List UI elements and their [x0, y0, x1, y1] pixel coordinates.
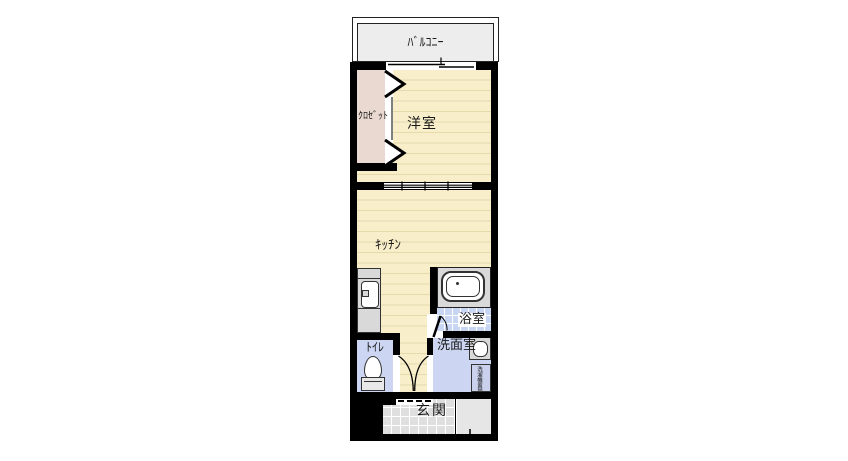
- balcony-label: ﾊﾞﾙｺﾆｰ: [407, 36, 443, 49]
- bathroom-door-opening-h: [427, 331, 443, 338]
- bedroom-label: 洋室: [407, 117, 437, 132]
- bathtub-surround: [437, 267, 491, 308]
- wall-closet-bottom: [350, 163, 397, 171]
- washing-machine-area: 洗濯機置場: [471, 364, 491, 392]
- toilet-tank-icon: [361, 377, 385, 391]
- floorplan-canvas: ﾊﾞﾙｺﾆｰ 洗濯機置場: [0, 0, 848, 461]
- entrance-step-dashed-line: [398, 400, 431, 402]
- bathtub-icon: [441, 271, 485, 302]
- closet-label: ｸﾛｾﾞｯﾄ: [352, 111, 394, 122]
- entrance-label: 玄関: [416, 404, 448, 419]
- counter-divider: [358, 308, 380, 309]
- toilet-door-opening: [393, 355, 400, 392]
- toilet-tank-line: [364, 381, 382, 382]
- wall-step-left: [383, 399, 396, 405]
- wall-right: [491, 62, 498, 441]
- faucet-icon: [362, 290, 369, 297]
- kitchen-sink-unit: [357, 268, 381, 333]
- sliding-door-opening: [384, 183, 472, 189]
- wall-bottom: [350, 434, 498, 441]
- kitchen-label: ｷｯﾁﾝ: [375, 239, 401, 253]
- washroom-label: 洗面室: [437, 339, 476, 353]
- entrance-porch: [457, 399, 491, 434]
- washing-machine-label: 洗濯機置場: [476, 366, 482, 392]
- wall-bath-bottom: [441, 331, 491, 338]
- bathtub-inner-line: [446, 276, 480, 297]
- washroom-door-opening: [427, 355, 433, 392]
- bathroom-label: 浴室: [458, 313, 486, 327]
- counter-divider: [358, 278, 380, 279]
- porch-divider: [455, 399, 456, 434]
- balcony-window-opening: [386, 62, 476, 70]
- wall-bath-left: [430, 267, 437, 317]
- bathtub-drain-icon: [456, 282, 459, 285]
- toilet-label: ﾄｲﾚ: [358, 341, 392, 354]
- balcony-area: ﾊﾞﾙｺﾆｰ: [357, 23, 494, 62]
